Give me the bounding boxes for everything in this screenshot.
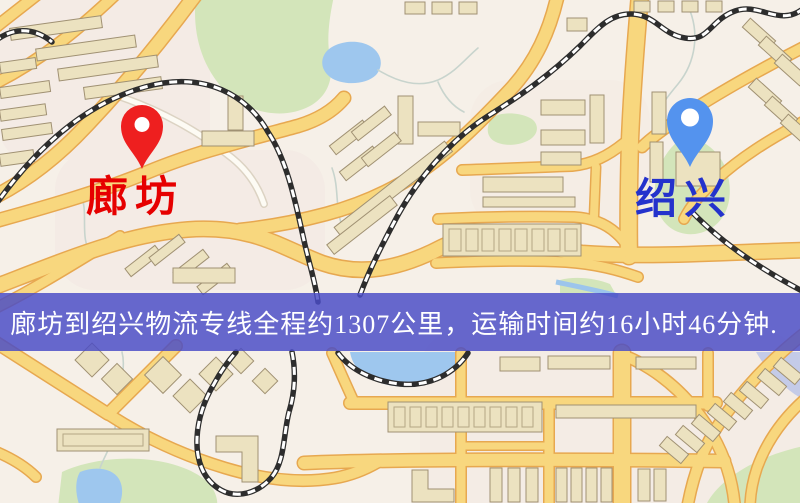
map-screenshot: 廊坊 绍兴 廊坊到绍兴物流专线全程约1307公里，运输时间约16小时46分钟. (0, 0, 800, 503)
route-info-text: 廊坊到绍兴物流专线全程约1307公里，运输时间约16小时46分钟. (10, 304, 778, 341)
origin-city-label: 廊坊 (86, 176, 184, 218)
destination-city-label: 绍兴 (635, 178, 733, 220)
route-info-banner: 廊坊到绍兴物流专线全程约1307公里，运输时间约16小时46分钟. (0, 293, 800, 351)
map-canvas (0, 0, 800, 503)
lake (322, 42, 381, 83)
